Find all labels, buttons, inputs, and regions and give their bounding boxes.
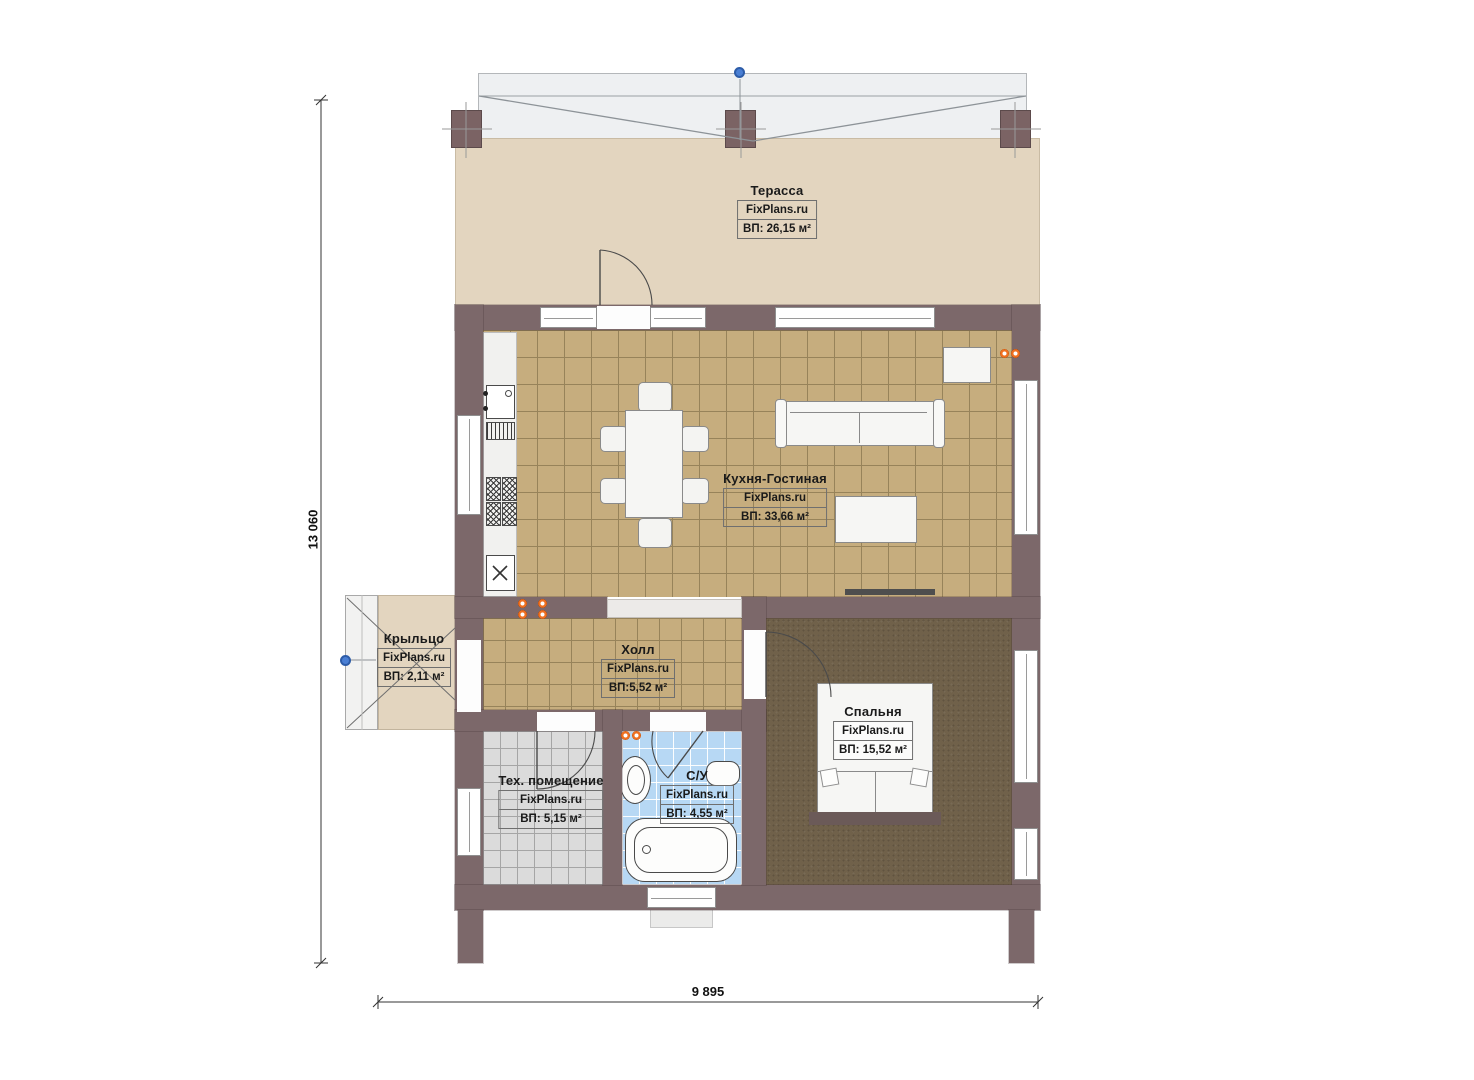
watermark: FixPlans.ru bbox=[378, 649, 450, 667]
room-area: ВП: 26,15 м² bbox=[738, 219, 816, 238]
stove-burner-2 bbox=[502, 477, 517, 501]
handle-top[interactable] bbox=[734, 67, 745, 78]
kitchen-hall-opening bbox=[607, 599, 742, 618]
socket-kitchen bbox=[1000, 347, 1022, 360]
window-bathroom-bottom bbox=[647, 887, 716, 908]
bathtub-drain bbox=[642, 845, 651, 854]
sofa-armrest-right bbox=[933, 399, 945, 448]
dining-chair-right-2 bbox=[681, 478, 709, 504]
window-kitchen-left bbox=[457, 415, 481, 515]
dining-table bbox=[625, 410, 683, 518]
stove-burner-3 bbox=[486, 502, 501, 526]
stove-burner-4 bbox=[502, 502, 517, 526]
room-name: С/У bbox=[660, 768, 734, 783]
window-kitchen-right bbox=[1014, 380, 1038, 535]
room-name: Крыльцо bbox=[377, 631, 451, 646]
porch-door-opening bbox=[457, 640, 481, 712]
socket-hall-1 bbox=[516, 599, 529, 621]
sofa-seat-divider bbox=[859, 412, 860, 443]
label-box: FixPlans.ru ВП: 5,15 м² bbox=[498, 790, 603, 829]
bathroom-sink bbox=[619, 756, 651, 804]
room-area: ВП: 33,66 м² bbox=[724, 507, 826, 526]
room-label-terrace: Терасса FixPlans.ru ВП: 26,15 м² bbox=[737, 183, 817, 239]
room-name: Кухня-Гостиная bbox=[723, 471, 827, 486]
floor-plan-canvas: Терасса FixPlans.ru ВП: 26,15 м² Кухня-Г… bbox=[0, 0, 1474, 1080]
window-sill-bottom bbox=[650, 908, 713, 928]
room-name: Терасса bbox=[737, 183, 817, 198]
stove-burner-1 bbox=[486, 477, 501, 501]
room-area: ВП:5,52 м² bbox=[602, 678, 674, 697]
kitchen-sink bbox=[486, 385, 515, 419]
tech-door-opening bbox=[537, 712, 595, 731]
sink-basin bbox=[505, 390, 512, 397]
socket-bathroom bbox=[621, 729, 643, 742]
kitchen-living-floor bbox=[483, 330, 1012, 597]
pillar-bottom-left bbox=[458, 910, 483, 963]
tv-cabinet bbox=[943, 347, 991, 383]
window-bedroom-right bbox=[1014, 650, 1038, 783]
tv-console bbox=[845, 589, 935, 595]
watermark: FixPlans.ru bbox=[738, 201, 816, 219]
watermark: FixPlans.ru bbox=[499, 791, 602, 809]
dining-chair-left-1 bbox=[600, 426, 628, 452]
wall-bottom bbox=[455, 885, 1040, 910]
label-box: FixPlans.ru ВП: 4,55 м² bbox=[660, 785, 734, 824]
wall-tech-bath bbox=[603, 710, 622, 885]
roof-post-left bbox=[451, 110, 482, 148]
coffee-table bbox=[835, 496, 917, 543]
sink-inner bbox=[627, 765, 645, 795]
watermark: FixPlans.ru bbox=[724, 489, 826, 507]
watermark: FixPlans.ru bbox=[661, 786, 733, 804]
room-label-kitchen-living: Кухня-Гостиная FixPlans.ru ВП: 33,66 м² bbox=[723, 471, 827, 527]
window-top-right bbox=[775, 307, 935, 328]
label-box: FixPlans.ru ВП:5,52 м² bbox=[601, 659, 675, 698]
room-label-hall: Холл FixPlans.ru ВП:5,52 м² bbox=[601, 642, 675, 698]
dining-chair-right-1 bbox=[681, 426, 709, 452]
room-label-porch: Крыльцо FixPlans.ru ВП: 2,11 м² bbox=[377, 631, 451, 687]
roof-post-right bbox=[1000, 110, 1031, 148]
room-label-bedroom: Спальня FixPlans.ru ВП: 15,52 м² bbox=[833, 704, 913, 760]
socket-hall-2 bbox=[536, 599, 549, 621]
dining-chair-bottom bbox=[638, 518, 672, 548]
faucet-dot-2 bbox=[483, 406, 488, 411]
sofa-armrest-left bbox=[775, 399, 787, 448]
bed-pillow-left bbox=[820, 768, 840, 788]
bath-door-opening bbox=[650, 712, 706, 731]
label-box: FixPlans.ru ВП: 2,11 м² bbox=[377, 648, 451, 687]
room-area: ВП: 5,15 м² bbox=[499, 809, 602, 828]
bathtub bbox=[625, 818, 737, 882]
label-box: FixPlans.ru ВП: 33,66 м² bbox=[723, 488, 827, 527]
dimension-height-label: 13 060 bbox=[306, 495, 321, 565]
room-label-bathroom: С/У FixPlans.ru ВП: 4,55 м² bbox=[660, 768, 734, 824]
roof-post-center bbox=[725, 110, 756, 148]
watermark: FixPlans.ru bbox=[834, 722, 912, 740]
room-area: ВП: 4,55 м² bbox=[661, 804, 733, 823]
room-label-tech-room: Тех. помещение FixPlans.ru ВП: 5,15 м² bbox=[498, 773, 603, 829]
room-area: ВП: 2,11 м² bbox=[378, 667, 450, 686]
kitchen-drainer bbox=[486, 422, 515, 440]
label-box: FixPlans.ru ВП: 15,52 м² bbox=[833, 721, 913, 760]
dining-chair-top bbox=[638, 382, 672, 412]
terrace-door-opening bbox=[597, 306, 650, 329]
watermark: FixPlans.ru bbox=[602, 660, 674, 678]
window-top-left bbox=[540, 307, 597, 328]
handle-left[interactable] bbox=[340, 655, 351, 666]
pillar-bottom-right bbox=[1009, 910, 1034, 963]
room-name: Холл bbox=[601, 642, 675, 657]
wall-bedroom-top bbox=[742, 597, 1040, 618]
wall-kitchen-hall bbox=[455, 597, 607, 618]
bed-pillow-right bbox=[910, 768, 930, 788]
dining-chair-left-2 bbox=[600, 478, 628, 504]
sofa bbox=[779, 401, 938, 446]
bed-headboard bbox=[809, 812, 941, 825]
room-area: ВП: 15,52 м² bbox=[834, 740, 912, 759]
room-name: Тех. помещение bbox=[498, 773, 603, 788]
window-tech-left bbox=[457, 788, 481, 856]
room-name: Спальня bbox=[833, 704, 913, 719]
label-box: FixPlans.ru ВП: 26,15 м² bbox=[737, 200, 817, 239]
kitchen-unit-x bbox=[486, 555, 515, 591]
window-top-mid bbox=[650, 307, 706, 328]
window-bedroom-right-2 bbox=[1014, 828, 1038, 880]
bed-blanket-divider bbox=[875, 772, 876, 813]
bedroom-door-opening bbox=[744, 630, 766, 699]
faucet-dot-1 bbox=[483, 391, 488, 396]
dimension-width-label: 9 895 bbox=[678, 984, 738, 999]
